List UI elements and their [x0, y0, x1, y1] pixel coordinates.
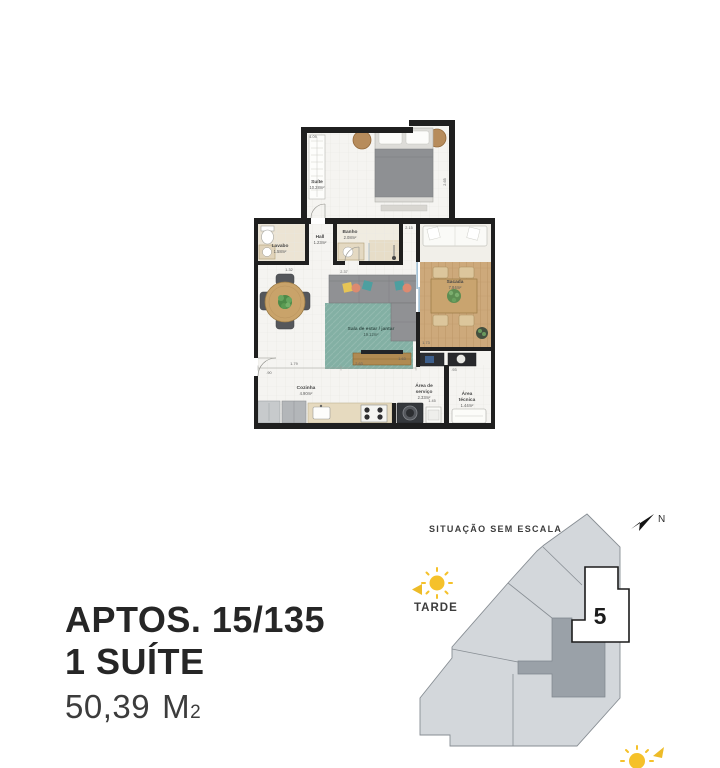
washing-machine: [397, 403, 423, 423]
dim-console-bottom: 1.63: [398, 357, 405, 361]
situation-svg: SITUAÇÃO SEM ESCALA N 5: [400, 505, 720, 768]
sacada-area: 7.84m²: [449, 285, 462, 290]
area-value: 50,39: [65, 688, 150, 725]
servico-label-1: Área de: [415, 382, 433, 389]
hall-area: 1.23m²: [314, 240, 327, 245]
kitchen-cabinet: [258, 401, 280, 423]
laundry-tank: [426, 407, 441, 423]
area-unit-sub: 2: [190, 702, 201, 723]
suite-area: 10.28m²: [309, 185, 325, 190]
dim-kitchen-mid: 2.63: [355, 362, 362, 366]
sala-area: 19.12m²: [363, 332, 379, 337]
apartment-info: APTOS. 15/135 1 SUÍTE 50,39M2: [65, 599, 325, 726]
lavabo-toilet: [261, 226, 274, 244]
sun-direction-triangle: [412, 584, 422, 595]
sun-direction-triangle-2: [653, 747, 664, 758]
dim-right-side: .93: [451, 368, 456, 372]
bed: [375, 128, 433, 211]
fridge: [282, 401, 306, 423]
sun-morning-icon: [621, 746, 664, 768]
bath-vanity: [338, 243, 364, 260]
dim-suite-right: 2.65: [443, 178, 447, 185]
stove: [361, 405, 387, 422]
sun-afternoon-icon: TARDE: [412, 568, 458, 614]
lavabo-area: 1.58m²: [274, 249, 287, 254]
unit-number: 5: [594, 603, 607, 629]
north-arrow-icon: N: [631, 514, 665, 531]
cozinha-area: 4.90m²: [300, 391, 313, 396]
dim-banho-top: 2.15: [405, 226, 412, 230]
dim-servico: 1.45: [428, 399, 435, 403]
dim-kitchen-left: 1.79: [290, 362, 297, 366]
banho-area: 2.08m²: [344, 235, 357, 240]
water-heater: [452, 409, 486, 423]
balcony-sofa: [423, 226, 487, 246]
dim-table-top: 1.32: [285, 268, 292, 272]
page: Suíte 10.28m² Lavabo 1.58m² Hall 1.23m² …: [0, 0, 720, 768]
building-footprint: 5: [420, 514, 629, 746]
apartment-area: 50,39M2: [65, 688, 325, 726]
corner-cabinet-dark: [420, 353, 444, 366]
floor-plan: Suíte 10.28m² Lavabo 1.58m² Hall 1.23m² …: [249, 107, 499, 432]
dim-sofa-top: 2.37: [340, 270, 347, 274]
floor-plan-svg: Suíte 10.28m² Lavabo 1.58m² Hall 1.23m² …: [249, 107, 499, 432]
north-label: N: [658, 514, 665, 525]
situation-diagram: SITUAÇÃO SEM ESCALA N 5: [400, 505, 720, 768]
tecnica-label-1: Área: [462, 390, 473, 397]
balcony-plant: [476, 327, 488, 339]
dim-left-side: .90: [266, 371, 271, 375]
situation-title: SITUAÇÃO SEM ESCALA: [429, 524, 562, 534]
sliding-door: [416, 262, 420, 312]
dim-suite-top: 4.09: [309, 135, 316, 139]
pouf-left: [353, 131, 371, 149]
area-unit: M: [162, 688, 190, 725]
dim-console-right: 1.73: [422, 341, 429, 345]
sun-label: TARDE: [414, 602, 458, 614]
apartment-type: 1 SUÍTE: [65, 641, 325, 683]
tecnica-area: 1.44m²: [461, 403, 474, 408]
apartment-numbers: APTOS. 15/135: [65, 599, 325, 641]
corner-sink-dark: [448, 353, 476, 366]
